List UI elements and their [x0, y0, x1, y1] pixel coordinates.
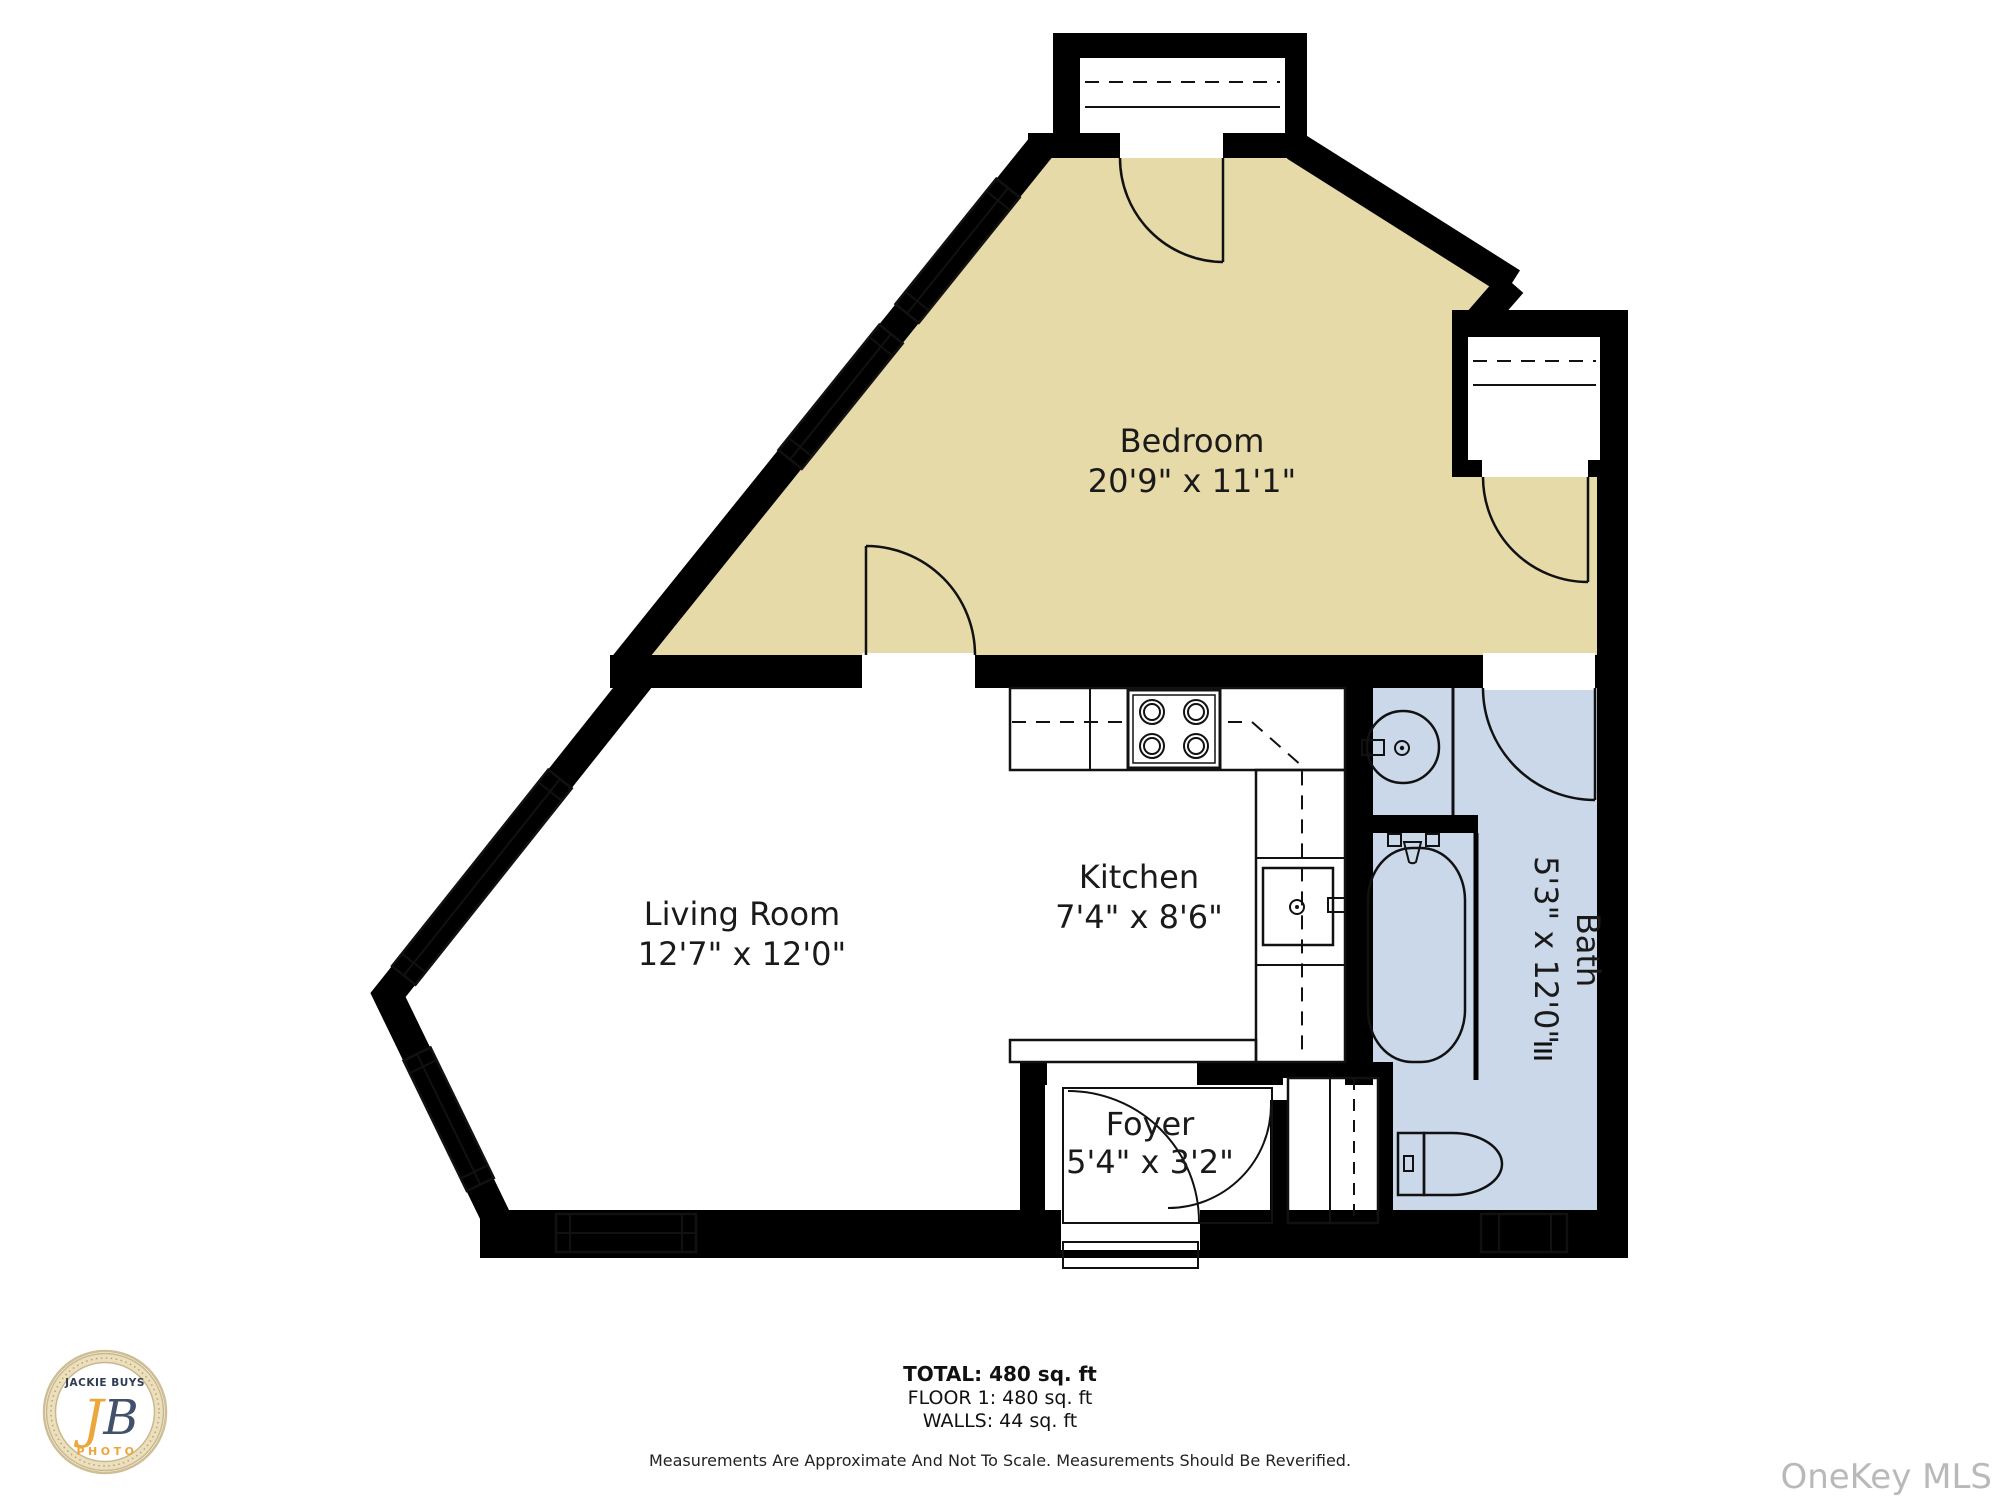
logo-top-text: JACKIE BUYS: [64, 1377, 145, 1389]
room-label-kitchen: Kitchen: [1079, 858, 1199, 896]
room-label-bedroom: Bedroom: [1120, 422, 1265, 460]
room-label-foyer: Foyer: [1106, 1105, 1195, 1143]
floor-plan-page: Bedroom 20'9" x 11'1" Living Room 12'7" …: [0, 0, 2000, 1500]
photographer-logo: JACKIE BUYS J B PHOTO: [44, 1351, 166, 1473]
room-dims-kitchen: 7'4" x 8'6": [1055, 898, 1223, 936]
disclaimer-text: Measurements Are Approximate And Not To …: [649, 1451, 1351, 1470]
room-dims-foyer: 5'4" x 3'2": [1066, 1143, 1234, 1181]
room-dims-living: 12'7" x 12'0": [638, 935, 846, 973]
foyer-closet: [1288, 1078, 1378, 1223]
summary-total: TOTAL: 480 sq. ft: [903, 1362, 1097, 1386]
room-dims-bedroom: 20'9" x 11'1": [1088, 462, 1296, 500]
room-label-bath: Bath: [1569, 913, 1607, 987]
room-label-living: Living Room: [644, 895, 840, 933]
logo-bottom-text: PHOTO: [77, 1445, 138, 1458]
kitchen-sink: [1263, 868, 1345, 945]
logo-monogram-b: B: [102, 1390, 138, 1446]
summary-floor: FLOOR 1: 480 sq. ft: [908, 1387, 1093, 1409]
room-dims-bath: 5'3" x 12'0": [1527, 856, 1565, 1044]
stove-icon: [1128, 690, 1220, 768]
floor-plan: Bedroom 20'9" x 11'1" Living Room 12'7" …: [0, 0, 2000, 1500]
window-living-lower: [404, 1047, 494, 1191]
summary-walls: WALLS: 44 sq. ft: [923, 1410, 1077, 1432]
mls-watermark: OneKey MLS: [1780, 1457, 1992, 1497]
